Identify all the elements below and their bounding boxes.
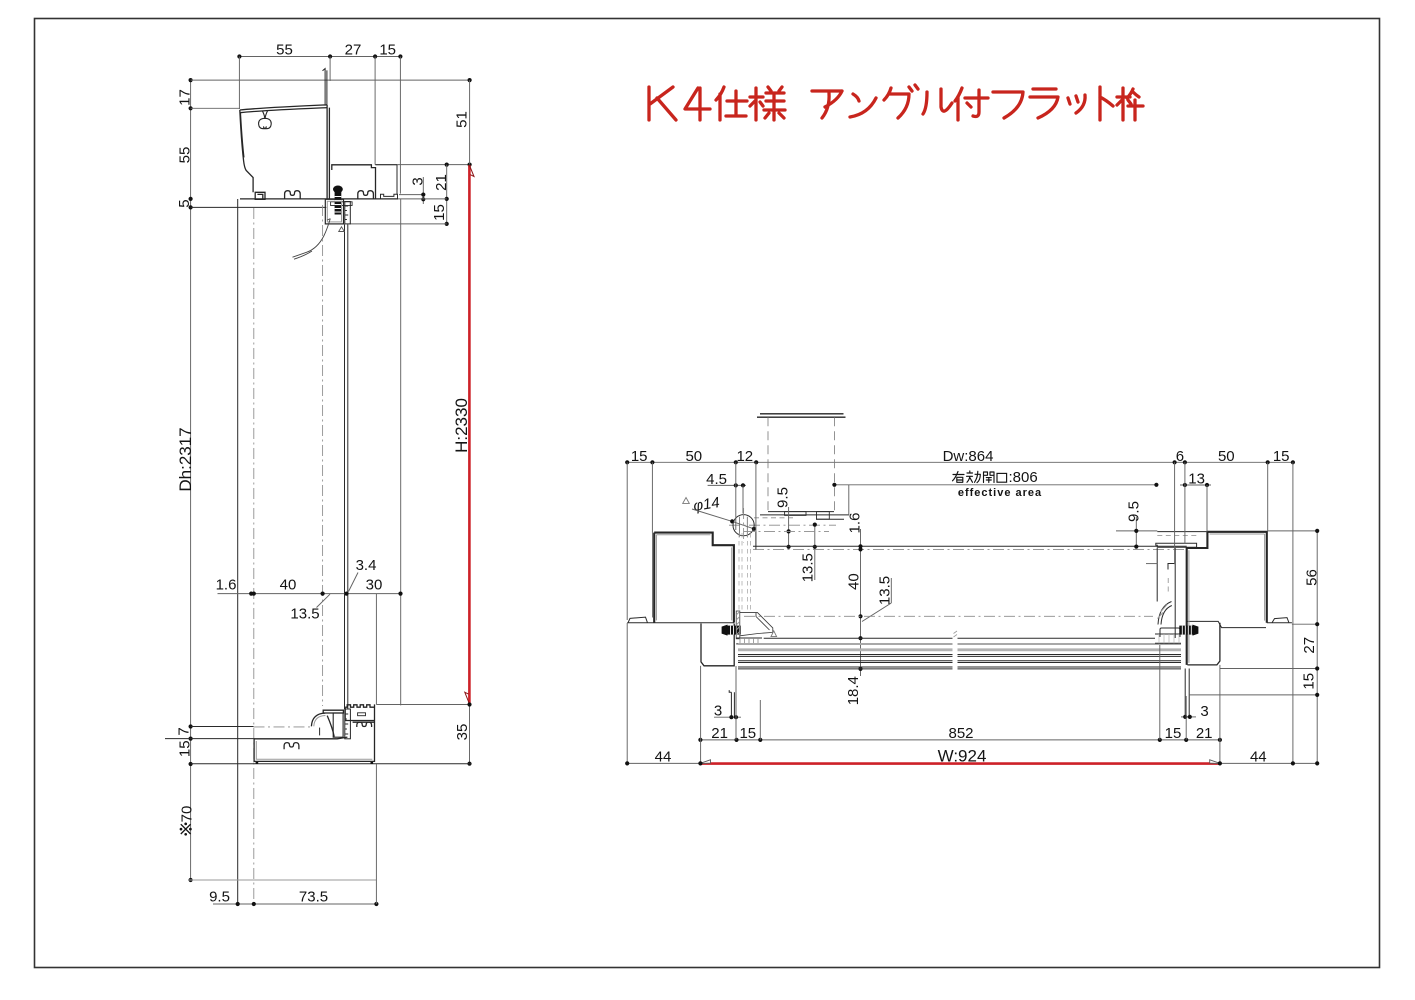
svg-text:56: 56: [1304, 569, 1321, 586]
svg-text:40: 40: [846, 573, 863, 590]
svg-text:27: 27: [1301, 637, 1318, 654]
svg-text:13: 13: [1188, 470, 1205, 487]
svg-text:9.5: 9.5: [1126, 501, 1143, 522]
svg-text:9.5: 9.5: [775, 487, 792, 508]
svg-text:Dh:2317: Dh:2317: [176, 427, 195, 491]
svg-text:effective area: effective area: [958, 487, 1042, 499]
svg-text:17: 17: [176, 89, 193, 106]
svg-text:15: 15: [631, 448, 648, 465]
svg-text:21: 21: [1196, 725, 1213, 742]
svg-text:44: 44: [1250, 748, 1267, 765]
svg-text:3: 3: [714, 702, 722, 719]
svg-text:18.4: 18.4: [845, 676, 862, 705]
svg-text:15: 15: [431, 204, 448, 221]
svg-text:15: 15: [176, 740, 193, 757]
svg-text:70: 70: [179, 806, 196, 823]
svg-text:9.5: 9.5: [209, 889, 230, 906]
svg-text:44: 44: [655, 748, 672, 765]
svg-text:13.5: 13.5: [800, 553, 817, 582]
svg-text:15: 15: [379, 42, 396, 59]
svg-text:3.4: 3.4: [356, 557, 377, 574]
svg-text:4.5: 4.5: [706, 471, 727, 488]
svg-text:15: 15: [1300, 673, 1317, 690]
svg-text:40: 40: [280, 577, 297, 594]
svg-text:73.5: 73.5: [299, 889, 328, 906]
svg-text:W:924: W:924: [938, 747, 987, 766]
svg-text:6: 6: [1176, 448, 1184, 465]
svg-text:3: 3: [1200, 703, 1208, 720]
svg-text:55: 55: [276, 42, 293, 59]
svg-text:27: 27: [345, 42, 362, 59]
svg-text:12: 12: [736, 448, 753, 465]
svg-text:55: 55: [176, 147, 193, 164]
svg-text::806: :806: [1009, 469, 1038, 486]
svg-text:35: 35: [454, 724, 471, 741]
svg-text:50: 50: [685, 448, 702, 465]
svg-text:15: 15: [1273, 448, 1290, 465]
svg-text:H:2330: H:2330: [452, 398, 471, 453]
svg-text:50: 50: [1218, 448, 1235, 465]
svg-text:Dw:864: Dw:864: [943, 448, 994, 465]
svg-text:13.5: 13.5: [290, 606, 319, 623]
svg-text:13.5: 13.5: [877, 576, 894, 605]
svg-text:7: 7: [176, 727, 193, 735]
svg-text:21: 21: [711, 725, 728, 742]
svg-text:852: 852: [948, 725, 973, 742]
svg-text:15: 15: [1165, 725, 1182, 742]
svg-text:5: 5: [176, 199, 193, 207]
svg-text:30: 30: [366, 577, 383, 594]
svg-text:21: 21: [433, 174, 450, 191]
svg-text:1.6: 1.6: [847, 513, 864, 534]
svg-text:15: 15: [739, 725, 756, 742]
svg-text:51: 51: [454, 111, 471, 128]
svg-text:3: 3: [409, 177, 426, 185]
svg-text:1.6: 1.6: [216, 577, 237, 594]
